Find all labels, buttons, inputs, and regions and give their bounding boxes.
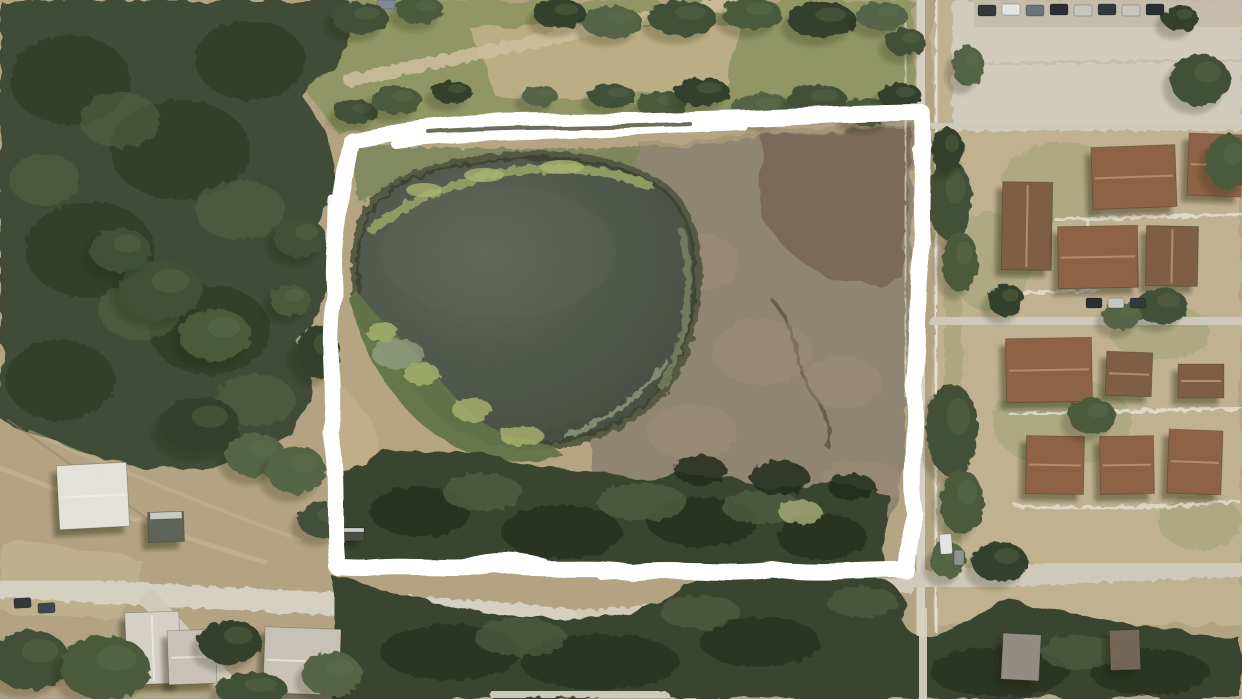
outline-stroke — [600, 571, 840, 575]
outline-stroke — [917, 150, 921, 326]
warm-haze-veil — [0, 0, 1242, 699]
satellite-map-canvas[interactable] — [0, 0, 1242, 699]
outline-corner-dab — [897, 561, 915, 579]
satellite-image — [0, 0, 1242, 699]
layer-texture-overlay — [0, 0, 1242, 699]
outline-corner-dab — [912, 104, 930, 122]
outline-corner-dab — [343, 132, 361, 150]
outline-stroke — [331, 200, 337, 524]
outline-corner-dab — [329, 558, 347, 576]
